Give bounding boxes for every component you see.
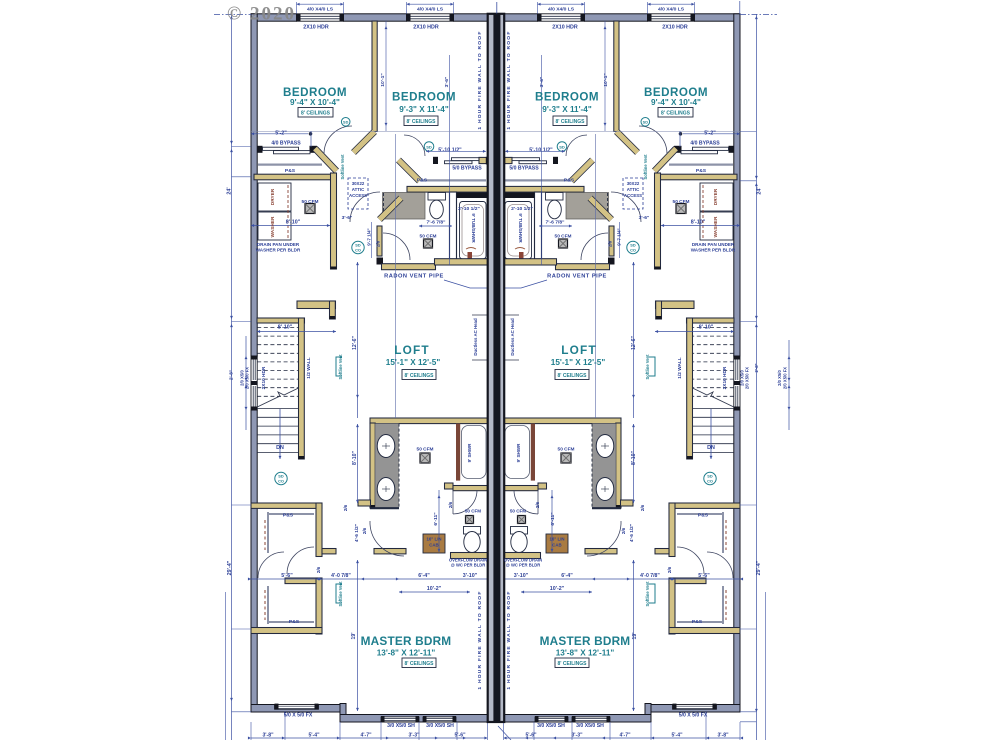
svg-text:DRAIN PAN UNDER: DRAIN PAN UNDER [257,242,300,247]
svg-text:8'-10": 8'-10" [278,325,293,331]
svg-text:2/6: 2/6 [667,566,672,573]
svg-text:5'-4": 5'-4" [308,733,320,739]
svg-text:1 HOUR FIRE WALL TO ROOF: 1 HOUR FIRE WALL TO ROOF [477,30,483,129]
svg-text:8' CEILINGS: 8' CEILINGS [556,119,586,125]
svg-text:BEDROOM: BEDROOM [535,91,599,104]
svg-text:P&S: P&S [698,513,709,519]
svg-text:CO: CO [707,478,713,483]
svg-text:2X10 HDR: 2X10 HDR [662,25,688,31]
svg-text:13'-8" X 12'-11": 13'-8" X 12'-11" [556,649,615,658]
svg-text:SD: SD [559,145,565,150]
svg-text:2X10 HDR: 2X10 HDR [413,25,439,31]
svg-text:8'-10": 8'-10" [691,220,706,226]
svg-text:5'-6": 5'-6" [454,733,466,739]
svg-text:SD: SD [426,145,432,150]
svg-text:50 CFM: 50 CFM [465,509,481,514]
svg-text:13'-8" X 12'-11": 13'-8" X 12'-11" [377,649,436,658]
svg-text:8' CEILINGS: 8' CEILINGS [407,119,437,125]
svg-text:2X10 HDR: 2X10 HDR [552,25,578,31]
svg-text:WASHER PER BLDR: WASHER PER BLDR [691,248,736,253]
svg-text:3/0 X5/0 SH: 3/0 X5/0 SH [537,723,565,729]
svg-text:9'-4" X 10'-4": 9'-4" X 10'-4" [290,98,340,107]
svg-text:P&S: P&S [696,168,707,174]
svg-text:10'-1": 10'-1" [380,73,386,87]
svg-text:9' SHWR: 9' SHWR [516,443,521,462]
svg-text:8'-10": 8'-10" [699,325,714,331]
svg-text:2/0 X5/0 FX: 2/0 X5/0 FX [245,367,250,389]
svg-text:8'-10": 8'-10" [631,450,637,465]
svg-text:CO: CO [278,478,284,483]
svg-text:4'-0 7/8": 4'-0 7/8" [331,573,351,579]
svg-text:29'-4": 29'-4" [756,560,762,575]
svg-text:DRYER: DRYER [270,188,276,205]
svg-text:3'-6": 3'-6" [539,76,545,87]
svg-text:Ductless AC Head: Ductless AC Head [473,318,478,356]
svg-text:24': 24' [227,187,233,194]
svg-text:5'-6": 5'-6" [698,573,710,579]
svg-text:2/6: 2/6 [621,527,626,534]
svg-text:8'-10": 8'-10" [286,220,301,226]
svg-text:LOFT: LOFT [394,343,430,357]
svg-text:9'-3" X 11'-4": 9'-3" X 11'-4" [542,105,592,114]
svg-text:5'-10 1/2": 5'-10 1/2" [529,148,553,154]
svg-text:9'-4" X 10'-4": 9'-4" X 10'-4" [651,98,701,107]
svg-text:2X10 HDR: 2X10 HDR [261,366,267,389]
svg-text:7'-6 7/8": 7'-6 7/8" [546,220,566,226]
svg-text:5/0 BYPASS: 5/0 BYPASS [452,166,482,172]
svg-text:15'-1" X 12'-5": 15'-1" X 12'-5" [551,358,606,367]
svg-text:10'-1": 10'-1" [603,73,609,87]
svg-text:50 CFM: 50 CFM [302,199,319,205]
svg-text:3/0 X5/0 SH: 3/0 X5/0 SH [426,723,454,729]
svg-text:P&S: P&S [283,513,294,519]
svg-text:P&S: P&S [417,178,428,184]
svg-text:Softline Vent: Softline Vent [645,581,650,607]
svg-text:6'-4": 6'-4" [561,573,573,579]
svg-text:WASHER PER BLDR: WASHER PER BLDR [256,248,301,253]
svg-text:MASTER BDRM: MASTER BDRM [361,634,452,648]
svg-text:3'-6": 3'-6" [444,76,450,87]
svg-text:4'-6 1/2": 4'-6 1/2" [354,524,360,542]
svg-text:1 HOUR FIRE WALL TO ROOF: 1 HOUR FIRE WALL TO ROOF [477,590,483,689]
svg-text:2'-8": 2'-8" [754,363,759,372]
svg-text:8' CEILINGS: 8' CEILINGS [301,111,331,117]
svg-text:15'-1" X 12'-5": 15'-1" X 12'-5" [386,358,441,367]
svg-text:3'-6": 3'-6" [342,215,353,221]
svg-text:Softline Vent: Softline Vent [340,154,345,180]
svg-text:2/6: 2/6 [343,504,348,511]
svg-text:12'-6": 12'-6" [631,335,637,350]
svg-text:4'-7": 4'-7" [619,733,631,739]
svg-text:29'-4": 29'-4" [227,560,233,575]
svg-text:RADON VENT PIPE: RADON VENT PIPE [547,274,607,280]
svg-text:5'-10 1/2": 5'-10 1/2" [438,148,462,154]
svg-text:9' TUB/SHWR: 9' TUB/SHWR [518,213,523,243]
svg-text:DRYER: DRYER [713,188,719,205]
svg-text:WASHER: WASHER [713,216,719,237]
svg-text:6'-11": 6'-11" [550,512,556,526]
svg-text:3/0 X5/0 SH: 3/0 X5/0 SH [387,723,415,729]
svg-text:50 CFM: 50 CFM [420,234,437,240]
svg-text:2/6: 2/6 [362,527,367,534]
svg-text:4/0 X4/0 LS: 4/0 X4/0 LS [307,7,334,13]
svg-text:@ WC PER BLDR: @ WC PER BLDR [451,563,485,568]
svg-text:50 CFM: 50 CFM [510,509,526,514]
svg-text:3'-8": 3'-8" [262,733,274,739]
svg-text:8' CEILINGS: 8' CEILINGS [405,373,435,379]
svg-text:2/6: 2/6 [608,240,613,247]
svg-text:10'-2": 10'-2" [550,586,565,592]
svg-text:9'-7 1/4": 9'-7 1/4" [367,228,372,245]
svg-text:2X10 HDR: 2X10 HDR [722,366,728,389]
svg-text:50 CFM: 50 CFM [555,234,572,240]
svg-text:19': 19' [351,633,357,640]
svg-text:ACCESS: ACCESS [624,193,642,198]
svg-text:3'-3": 3'-3" [571,733,583,739]
svg-text:5'-4": 5'-4" [671,733,683,739]
svg-text:2'-10 1/2": 2'-10 1/2" [458,206,480,212]
svg-text:24': 24' [757,187,763,194]
svg-text:5'-6": 5'-6" [281,573,293,579]
svg-text:ATTIC: ATTIC [352,187,365,192]
svg-text:4'-0 7/8": 4'-0 7/8" [640,573,660,579]
svg-text:P&S: P&S [285,168,296,174]
svg-text:3/0 X5/0 SH: 3/0 X5/0 SH [576,723,604,729]
svg-text:2/6: 2/6 [448,501,453,508]
svg-text:Softline Vent: Softline Vent [645,354,650,380]
svg-text:8' CEILINGS: 8' CEILINGS [558,373,588,379]
svg-text:MASTER BDRM: MASTER BDRM [540,634,631,648]
svg-text:CO: CO [630,247,636,252]
svg-text:8' CEILINGS: 8' CEILINGS [405,661,435,667]
svg-text:@ WC PER BLDR: @ WC PER BLDR [506,563,540,568]
svg-text:16" LIN: 16" LIN [426,537,441,542]
svg-text:9'-3" X 11'-4": 9'-3" X 11'-4" [399,105,449,114]
svg-text:P&S: P&S [692,619,703,625]
svg-text:4/0 BYPASS: 4/0 BYPASS [271,141,301,147]
svg-text:4/0 X4/0 LS: 4/0 X4/0 LS [417,7,444,13]
svg-text:Softline Vent: Softline Vent [338,581,343,607]
svg-text:CAB: CAB [552,543,561,548]
svg-text:SD: SD [643,121,649,125]
svg-text:P&S: P&S [564,178,575,184]
svg-text:BEDROOM: BEDROOM [392,91,456,104]
svg-text:3'-10": 3'-10" [514,573,529,579]
svg-text:RADON VENT PIPE: RADON VENT PIPE [384,274,444,280]
svg-text:4/0 BYPASS: 4/0 BYPASS [690,141,720,147]
svg-text:Softline Vent: Softline Vent [643,154,648,180]
svg-text:30X22: 30X22 [352,181,365,186]
svg-text:Ductless AC Head: Ductless AC Head [510,318,515,356]
svg-text:2/6: 2/6 [376,240,381,247]
svg-text:P&S: P&S [289,619,300,625]
svg-text:CAB: CAB [429,543,438,548]
svg-text:2/6: 2/6 [535,501,540,508]
svg-text:50 CFM: 50 CFM [673,199,690,205]
svg-text:50 CFM: 50 CFM [558,447,575,453]
svg-text:4'-7": 4'-7" [360,733,372,739]
svg-text:3'-8": 3'-8" [717,733,729,739]
svg-text:ACCESS: ACCESS [349,193,367,198]
svg-text:Softline Vent: Softline Vent [338,354,343,380]
svg-text:© 2020: © 2020 [227,4,296,25]
svg-text:WASHER: WASHER [270,216,276,237]
svg-text:5'-2": 5'-2" [275,131,287,137]
svg-text:8' CEILINGS: 8' CEILINGS [558,661,588,667]
svg-text:DRAIN PAN UNDER: DRAIN PAN UNDER [692,242,735,247]
svg-text:DN: DN [276,445,284,451]
svg-text:DN: DN [707,445,715,451]
svg-text:2/6: 2/6 [640,504,645,511]
svg-text:ATTIC: ATTIC [627,187,640,192]
svg-text:2/6: 2/6 [316,566,321,573]
svg-text:19': 19' [632,633,638,640]
svg-text:7'-6 7/8": 7'-6 7/8" [427,220,447,226]
svg-text:5/0 X 5/0 FX: 5/0 X 5/0 FX [284,713,313,719]
svg-text:2'-8": 2'-8" [229,370,234,380]
svg-text:3'-6": 3'-6" [639,215,650,221]
svg-text:6'-4": 6'-4" [418,573,430,579]
svg-text:6'-11": 6'-11" [433,512,439,526]
svg-text:10'-2": 10'-2" [427,586,442,592]
svg-text:3'-10": 3'-10" [463,573,478,579]
svg-text:5/0 X 5/0 FX: 5/0 X 5/0 FX [679,713,708,719]
svg-text:2/0 X5/0 FX: 2/0 X5/0 FX [783,367,788,389]
svg-text:1 HOUR FIRE WALL TO ROOF: 1 HOUR FIRE WALL TO ROOF [506,30,512,129]
svg-text:1/2 WALL: 1/2 WALL [306,357,312,378]
svg-text:8'-10": 8'-10" [352,450,358,465]
svg-text:SD: SD [343,121,349,125]
svg-text:4'-6 1/2": 4'-6 1/2" [629,524,635,542]
svg-text:30X22: 30X22 [627,181,640,186]
svg-text:16" LIN: 16" LIN [549,537,564,542]
svg-text:2'-10 1/2": 2'-10 1/2" [511,206,533,212]
svg-text:50 CFM: 50 CFM [417,447,434,453]
svg-text:5'-2": 5'-2" [704,131,716,137]
svg-text:2X10 HDR: 2X10 HDR [303,25,329,31]
svg-text:2/0 X5/0: 2/0 X5/0 [777,370,782,386]
svg-text:12'-6": 12'-6" [352,335,358,350]
svg-text:5'-6": 5'-6" [525,733,537,739]
svg-text:9' TUB/SHWR: 9' TUB/SHWR [471,213,476,243]
svg-text:CO: CO [355,247,361,252]
svg-text:4/0 X4/0 LS: 4/0 X4/0 LS [548,7,575,13]
svg-text:LOFT: LOFT [561,343,597,357]
svg-text:9'-7 1/4": 9'-7 1/4" [617,228,622,245]
svg-text:8' CEILINGS: 8' CEILINGS [661,111,691,117]
svg-text:2/0 X5/0 FX: 2/0 X5/0 FX [745,367,750,389]
svg-text:5/0 BYPASS: 5/0 BYPASS [509,166,539,172]
svg-text:3'-3": 3'-3" [408,733,420,739]
svg-text:1 HOUR FIRE WALL TO ROOF: 1 HOUR FIRE WALL TO ROOF [506,590,512,689]
svg-text:4/0 X4/0 LS: 4/0 X4/0 LS [658,7,685,13]
svg-text:9' SHWR: 9' SHWR [467,443,472,462]
svg-text:1/2 WALL: 1/2 WALL [677,357,683,378]
